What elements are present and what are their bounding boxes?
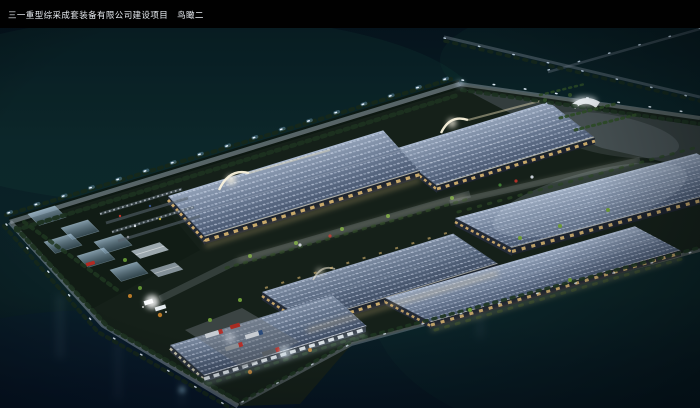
project-title: 三一重型综采成套装备有限公司建设项目 鸟瞰二 <box>0 0 700 30</box>
vignette <box>0 0 700 408</box>
rendering-canvas: 三一重型综采成套装备有限公司建设项目 鸟瞰二 <box>0 0 700 408</box>
campus-night-rendering <box>0 0 700 408</box>
title-bar: 三一重型综采成套装备有限公司建设项目 鸟瞰二 <box>0 0 700 28</box>
